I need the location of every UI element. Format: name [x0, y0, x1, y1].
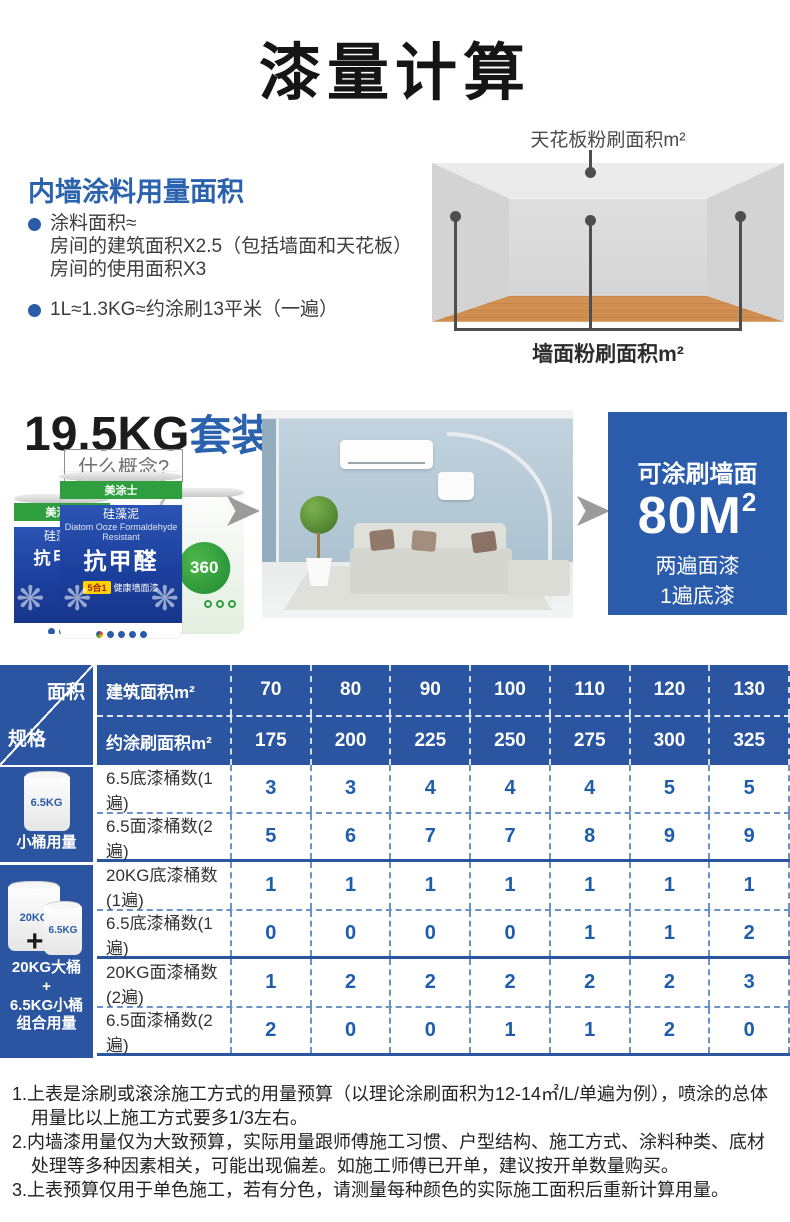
bullet-dot-icon: [28, 218, 41, 231]
bucket-360-badge: 360: [178, 542, 230, 594]
table-cell: 1: [391, 862, 471, 909]
footnote-1: 1.上表是涂刷或滚涂施工方式的用量预算（以理论涂刷面积为12-14㎡/L/单遍为…: [12, 1082, 780, 1130]
table-cell: 1: [551, 911, 631, 956]
table-header-row-paint-area: 约涂刷面积m² 175 200 225 250 275 300 325: [97, 715, 790, 765]
photo-plant-trunk: [317, 532, 320, 560]
table-side-combo-bucket: 20KG 6.5KG + 20KG大桶 + 6.5KG小桶 组合用量: [0, 865, 93, 1058]
corner-label-spec: 规格: [8, 724, 46, 751]
coverage-line-2: 两遍面漆: [608, 550, 787, 580]
header-cell: 130: [710, 665, 790, 715]
row-label: 6.5底漆桶数(1遍): [97, 765, 232, 812]
table-cell: 2: [471, 959, 551, 1006]
paint-calculation-infographic: { "page_title": "漆量计算", "colors": { "acc…: [0, 0, 790, 1222]
back-wall-pointer-line: [589, 221, 592, 330]
table-cell: 2: [391, 959, 471, 1006]
photo-sofa-base: [350, 548, 512, 594]
corner-label-area: 面积: [47, 677, 85, 704]
table-side-small-bucket: 6.5KG 小桶用量: [0, 767, 93, 862]
table-group-small-bucket: 6.5底漆桶数(1遍) 3 3 4 4 4 5 5 6.5面漆桶数(2遍) 5 …: [97, 765, 790, 862]
coverage-result-box: 可涂刷墙面 80M2 两遍面漆 1遍底漆: [608, 412, 787, 615]
room-illustration: [432, 163, 784, 325]
table-cell: 7: [471, 814, 551, 859]
bullet-1-line-2: 房间的建筑面积X2.5（包括墙面和天花板）: [50, 235, 412, 258]
table-cell: 0: [232, 911, 312, 956]
table-row: 6.5面漆桶数(2遍) 5 6 7 7 8 9 9: [97, 812, 790, 859]
side-caption: 20KG大桶 + 6.5KG小桶 组合用量: [0, 959, 93, 1034]
header-cell: 100: [471, 665, 551, 715]
table-header-row-building-area: 建筑面积m² 70 80 90 100 110 120 130: [97, 665, 790, 715]
coral-decoration-icon: ❋: [151, 579, 180, 619]
photo-window: [262, 419, 279, 569]
table-cell: 1: [232, 959, 312, 1006]
table-row: 6.5底漆桶数(1遍) 3 3 4 4 4 5 5: [97, 765, 790, 812]
usage-bullet-1-text: 涂料面积≈ 房间的建筑面积X2.5（包括墙面和天花板） 房间的使用面积X3: [50, 212, 412, 282]
row-label: 6.5底漆桶数(1遍): [97, 911, 232, 956]
usage-section-heading: 内墙涂料用量面积: [28, 170, 244, 209]
photo-sofa-chaise: [508, 560, 570, 596]
table-cell: 7: [391, 814, 471, 859]
table-row: 20KG底漆桶数(1遍) 1 1 1 1 1 1 1: [97, 862, 790, 909]
table-cell: 5: [232, 814, 312, 859]
wall-pointer-connector-line: [454, 328, 742, 331]
table-cell: 6: [312, 814, 392, 859]
table-cell: 1: [551, 862, 631, 909]
bullet-1-line-3: 房间的使用面积X3: [50, 258, 412, 281]
table-cell: 0: [391, 1008, 471, 1053]
table-cell: 1: [631, 911, 711, 956]
bucket-english-name: Diatom Ooze Formaldehyde Resistant: [60, 522, 182, 542]
paint-bucket-icon: 6.5KG: [24, 775, 70, 831]
table-cell: 0: [710, 1008, 790, 1053]
header-cell: 90: [391, 665, 471, 715]
bucket-body: 硅藻泥 Diatom Ooze Formaldehyde Resistant 抗…: [60, 505, 182, 623]
table-cell: 1: [631, 862, 711, 909]
photo-plant: [300, 496, 338, 534]
row-label: 20KG底漆桶数(1遍): [97, 862, 232, 909]
room-back-wall: [509, 199, 706, 296]
table-group-combo-topcoat: 20KG面漆桶数(2遍) 1 2 2 2 2 2 3 6.5面漆桶数(2遍) 2…: [97, 959, 790, 1056]
table-cell: 1: [471, 862, 551, 909]
table-row: 6.5面漆桶数(2遍) 2 0 0 1 1 2 0: [97, 1006, 790, 1053]
page-title: 漆量计算: [0, 22, 790, 112]
photo-floor-lamp-shade: [438, 472, 474, 500]
header-row-label: 约涂刷面积m²: [97, 717, 232, 765]
bullet-dot-icon: [28, 304, 41, 317]
header-cell: 325: [710, 717, 790, 765]
coverage-area-value: 80M2: [608, 489, 787, 544]
row-label: 6.5面漆桶数(2遍): [97, 1008, 232, 1053]
left-wall-pointer-line: [454, 217, 457, 330]
row-label: 6.5面漆桶数(2遍): [97, 814, 232, 859]
bucket-product-name: 抗甲醛: [60, 542, 182, 576]
table-cell: 2: [710, 911, 790, 956]
coverage-line-3: 1遍底漆: [608, 580, 787, 610]
table-cell: 2: [312, 959, 392, 1006]
bucket-rim: [60, 472, 182, 481]
photo-pillow: [369, 529, 395, 551]
paint-buckets-illustration: 360 美涂士 硅藻泥 抗甲醛 ❋ 美涂士 硅藻泥 Diatom Ooze Fo…: [14, 472, 246, 640]
header-cell: 225: [391, 717, 471, 765]
header-cell: 120: [631, 665, 711, 715]
arrow-right-icon: [577, 496, 610, 526]
table-cell: 9: [710, 814, 790, 859]
combo-bucket-illustration: 20KG 6.5KG +: [0, 873, 93, 959]
header-cell: 175: [232, 717, 312, 765]
table-cell: 9: [631, 814, 711, 859]
header-cell: 200: [312, 717, 392, 765]
table-cell: 0: [471, 911, 551, 956]
photo-air-conditioner: [340, 440, 433, 469]
table-cell: 2: [631, 959, 711, 1006]
side-caption: 小桶用量: [0, 834, 93, 853]
table-cell: 2: [551, 959, 631, 1006]
header-cell: 300: [631, 717, 711, 765]
coral-decoration-icon: ❋: [63, 579, 92, 619]
coverage-area-superscript: 2: [742, 487, 757, 517]
table-data-area: 建筑面积m² 70 80 90 100 110 120 130 约涂刷面积m² …: [97, 665, 790, 1056]
table-cell: 3: [312, 765, 392, 812]
table-cell: 4: [471, 765, 551, 812]
ceiling-pointer-dot: [585, 167, 596, 178]
paint-quantity-table: 面积 规格 6.5KG 小桶用量 20KG 6.5KG + 20KG大桶 + 6…: [0, 665, 790, 1058]
table-cell: 3: [710, 959, 790, 1006]
table-cell: 3: [232, 765, 312, 812]
photo-ceiling: [262, 410, 573, 419]
table-corner-cell: 面积 规格: [0, 665, 93, 765]
table-row: 20KG面漆桶数(2遍) 1 2 2 2 2 2 3: [97, 959, 790, 1006]
bullet-1-line-1: 涂料面积≈: [50, 212, 412, 235]
table-cell: 1: [312, 862, 392, 909]
paint-bucket-icon: 6.5KG: [44, 905, 82, 955]
table-cell: 1: [232, 862, 312, 909]
footnote-2: 2.内墙漆用量仅为大致预算，实际用量跟师傅施工习惯、户型结构、施工方式、涂料种类…: [12, 1130, 780, 1178]
header-row-label: 建筑面积m²: [97, 665, 232, 715]
table-cell: 1: [471, 1008, 551, 1053]
header-cell: 80: [312, 665, 392, 715]
footnote-3: 3.上表预算仅用于单色施工，若有分色，请测量每种颜色的实际施工面积后重新计算用量…: [12, 1178, 780, 1202]
table-cell: 5: [710, 765, 790, 812]
living-room-photo: [262, 410, 573, 618]
coral-decoration-icon: ❋: [16, 579, 45, 619]
room-diagram: 天花板粉刷面积m² 墙面粉刷面积m²: [430, 125, 786, 370]
header-cell: 70: [232, 665, 312, 715]
table-group-combo-primer: 20KG底漆桶数(1遍) 1 1 1 1 1 1 1 6.5底漆桶数(1遍) 0…: [97, 862, 790, 959]
table-cell: 0: [312, 1008, 392, 1053]
plus-icon: +: [26, 925, 44, 959]
table-cell: 0: [391, 911, 471, 956]
usage-bullet-2: 1L≈1.3KG≈约涂刷13平米（一遍）: [28, 298, 338, 321]
table-cell: 4: [391, 765, 471, 812]
coverage-line-1: 可涂刷墙面: [608, 454, 787, 489]
paint-bucket-front: 美涂士 硅藻泥 Diatom Ooze Formaldehyde Resista…: [60, 472, 182, 638]
table-cell: 2: [631, 1008, 711, 1053]
table-cell: 2: [232, 1008, 312, 1053]
footnotes: 1.上表是涂刷或滚涂施工方式的用量预算（以理论涂刷面积为12-14㎡/L/单遍为…: [12, 1082, 780, 1203]
kit-title-suffix: 套装: [189, 412, 273, 459]
bucket-bottom-band: [60, 623, 182, 638]
photo-pillow: [411, 530, 437, 552]
header-cell: 250: [471, 717, 551, 765]
table-cell: 1: [551, 1008, 631, 1053]
table-cell: 1: [710, 862, 790, 909]
bucket-brand-band: 美涂士: [60, 481, 182, 499]
ceiling-area-label: 天花板粉刷面积m²: [430, 125, 786, 152]
usage-bullet-1: 涂料面积≈ 房间的建筑面积X2.5（包括墙面和天花板） 房间的使用面积X3: [28, 212, 412, 282]
table-cell: 4: [551, 765, 631, 812]
right-wall-pointer-line: [739, 217, 742, 330]
bucket-360-dots-icon: [204, 600, 236, 608]
header-cell: 110: [551, 665, 631, 715]
table-cell: 5: [631, 765, 711, 812]
table-cell: 0: [312, 911, 392, 956]
bucket-series-name: 硅藻泥: [60, 505, 182, 522]
row-label: 20KG面漆桶数(2遍): [97, 959, 232, 1006]
header-cell: 275: [551, 717, 631, 765]
photo-pillow: [471, 530, 498, 553]
usage-bullet-2-text: 1L≈1.3KG≈约涂刷13平米（一遍）: [50, 298, 338, 321]
wall-area-label: 墙面粉刷面积m²: [430, 338, 786, 368]
table-cell: 8: [551, 814, 631, 859]
table-row: 6.5底漆桶数(1遍) 0 0 0 0 1 1 2: [97, 909, 790, 956]
